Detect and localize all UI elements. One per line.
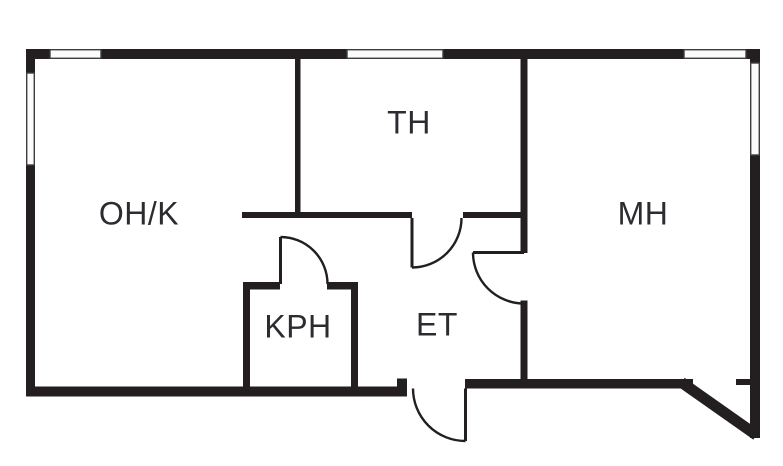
floor-plan: OH/K TH MH KPH ET <box>0 0 783 466</box>
window-right <box>751 63 760 155</box>
room-label-mh: MH <box>618 196 669 233</box>
window-left <box>27 73 35 165</box>
room-label-ohk: OH/K <box>99 196 179 233</box>
wall-diagonal <box>686 386 752 433</box>
wall-th-bottom-right-of-door <box>463 212 528 218</box>
wall-kph-top-left-of-door <box>243 282 280 290</box>
wall-entry-jamb-block <box>397 379 407 397</box>
window-top-left <box>50 50 101 59</box>
wall-et-mh-upper <box>521 59 528 253</box>
door-kph-swing-arc <box>281 237 328 284</box>
wall-kph-right <box>351 282 358 397</box>
door-th-swing-arc <box>412 218 462 268</box>
wall-bottom-right <box>465 379 693 389</box>
room-label-th: TH <box>387 105 431 142</box>
door-th <box>412 218 462 268</box>
window-top-right <box>684 50 746 59</box>
wall-balcony-stub <box>736 379 751 385</box>
room-label-kph: KPH <box>264 309 331 346</box>
door-entrance-swing-arc <box>413 389 466 442</box>
floor-plan-drawing <box>0 0 783 466</box>
wall-kph-left <box>243 282 250 397</box>
wall-et-mh-lower <box>521 301 528 389</box>
door-mh-swing-arc <box>473 253 524 304</box>
door-kph <box>281 237 328 284</box>
room-label-et: ET <box>416 307 458 344</box>
wall-bottom-left <box>26 387 407 397</box>
wall-th-bottom-left-of-door <box>242 212 412 218</box>
door-mh <box>473 253 524 304</box>
door-entrance <box>413 389 466 442</box>
interior-walls <box>242 59 528 397</box>
wall-ohk-th-divider <box>295 59 301 218</box>
window-top-middle <box>347 50 443 59</box>
